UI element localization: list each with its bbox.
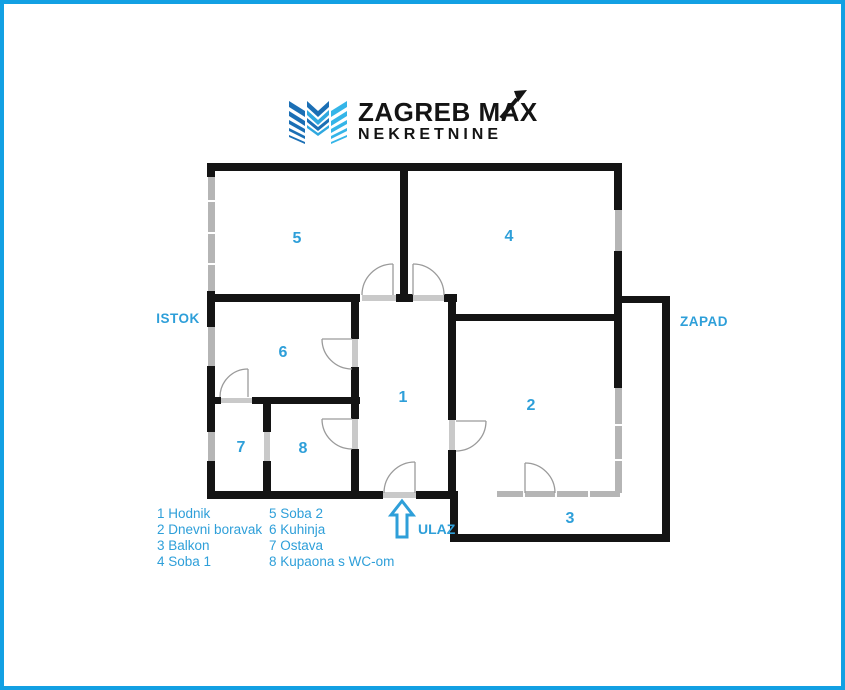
door-arc-room2	[456, 421, 486, 451]
room-number-ostava: 7	[237, 439, 246, 456]
room-number-soba1: 4	[505, 228, 514, 245]
walls	[207, 163, 670, 542]
door-arc-room6	[322, 339, 352, 369]
legend-item-soba1: 4 Soba 1	[157, 554, 262, 570]
room-number-dnevni: 2	[527, 397, 536, 414]
door-arc-room5	[362, 264, 393, 295]
floorplan-page: ZAGREB MAX NEKRETNINE	[0, 0, 845, 690]
legend-item-dnevni: 2 Dnevni boravak	[157, 522, 262, 538]
compass-west-label: ZAPAD	[680, 314, 728, 329]
door-arc-entrance	[384, 462, 415, 493]
floorplan-drawing: 1 2 3 4 5 6 7 8 ISTOK ZAPAD ULAZ	[4, 4, 845, 690]
legend-column-1: 1 Hodnik 2 Dnevni boravak 3 Balkon 4 Sob…	[157, 506, 262, 570]
legend-item-ostava: 7 Ostava	[269, 538, 394, 554]
room-number-kupaona: 8	[299, 440, 308, 457]
door-arc-room4	[413, 264, 444, 295]
window-ticks	[208, 200, 622, 497]
room-number-soba2: 5	[293, 230, 302, 247]
legend-item-soba2: 5 Soba 2	[269, 506, 394, 522]
room-number-kuhinja: 6	[279, 344, 288, 361]
legend-column-2: 5 Soba 2 6 Kuhinja 7 Ostava 8 Kupaona s …	[269, 506, 394, 570]
room-number-hodnik: 1	[399, 389, 408, 406]
room-number-balkon: 3	[566, 510, 575, 527]
legend-item-kuhinja: 6 Kuhinja	[269, 522, 394, 538]
entrance-label: ULAZ	[418, 521, 456, 537]
door-arc-balcony	[525, 463, 555, 493]
legend-item-balkon: 3 Balkon	[157, 538, 262, 554]
legend-item-kupaona: 8 Kupaona s WC-om	[269, 554, 394, 570]
door-arc-room8	[322, 419, 352, 449]
windows	[208, 177, 622, 497]
door-openings	[221, 295, 455, 498]
legend-item-hodnik: 1 Hodnik	[157, 506, 262, 522]
door-arc-room7	[220, 369, 248, 397]
compass-east-label: ISTOK	[156, 311, 200, 326]
